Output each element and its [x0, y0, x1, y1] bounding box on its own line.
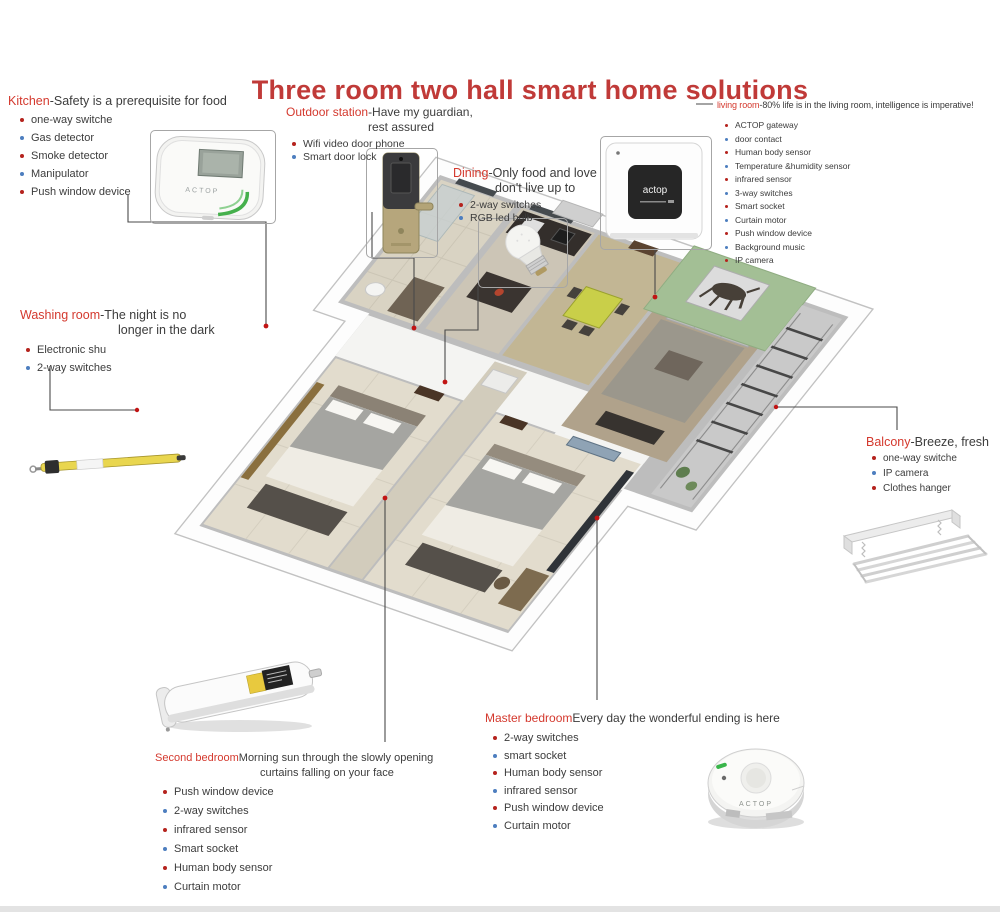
bullet-dot [725, 259, 728, 262]
washing-feature-list: Electronic shu 2-way switches [20, 344, 195, 375]
bullet-dot [493, 754, 497, 758]
balcony-desc: -Breeze, fresh [910, 435, 989, 449]
section-balcony: Balcony-Breeze, fresh one-way switche IP… [866, 435, 989, 498]
second-bedroom-feature-list: Push window device 2-way switches infrar… [155, 786, 433, 894]
feature-item: Temperature &humidity sensor [725, 161, 997, 171]
section-second-bedroom: Second bedroomMorning sun through the sl… [155, 751, 433, 900]
kitchen-name: Kitchen [8, 94, 50, 108]
bullet-dot [292, 142, 296, 146]
living-desc: -80% life is in the living room, intelli… [759, 100, 973, 110]
feature-item: Curtain motor [493, 820, 780, 833]
bullet-dot [20, 118, 24, 122]
bullet-dot [493, 789, 497, 793]
dining-desc: -Only food and love [488, 166, 596, 180]
bottom-edge-strip [0, 906, 1000, 912]
feature-item: Gas detector [20, 132, 227, 145]
second-bedroom-name: Second bedroom [155, 752, 239, 764]
feature-item: ACTOP gateway [725, 120, 997, 130]
washing-desc-line2: longer in the dark [118, 323, 195, 338]
outdoor-feature-list: Wifi video door phone Smart door lock [286, 138, 486, 163]
feature-item: Smart socket [163, 843, 433, 856]
master-bedroom-name: Master bedroom [485, 711, 572, 725]
balcony-feature-list: one-way switche IP camera Clothes hanger [866, 453, 989, 495]
washing-name: Washing room [20, 308, 100, 322]
wall-switch-brand-label: actop [643, 185, 668, 196]
bullet-dot [292, 155, 296, 159]
bullet-dot [493, 736, 497, 740]
balcony-name: Balcony [866, 435, 910, 449]
feature-item: Electronic shu [26, 344, 195, 357]
feature-item: Wifi video door phone [292, 138, 486, 150]
feature-item: Background music [725, 242, 997, 252]
bullet-dot [26, 348, 30, 352]
tubular-motor-image [25, 448, 193, 482]
feature-item: Manipulator [20, 168, 227, 181]
outdoor-name: Outdoor station [286, 105, 368, 119]
feature-item: infrared sensor [725, 174, 997, 184]
poster: ACTOP [0, 0, 1000, 912]
bullet-dot [725, 232, 728, 235]
bullet-dot [725, 246, 728, 249]
washing-desc: -The night is no [100, 308, 186, 322]
feature-item: IP camera [872, 468, 989, 480]
bullet-dot [163, 790, 167, 794]
feature-item: Push window device [20, 186, 227, 199]
bullet-dot [725, 124, 728, 127]
bullet-dot [163, 809, 167, 813]
section-kitchen: Kitchen-Safety is a prerequisite for foo… [8, 94, 227, 204]
door-lock-image [369, 151, 435, 255]
bullet-dot [163, 885, 167, 889]
bullet-dot [20, 190, 24, 194]
bullet-dot [872, 456, 876, 460]
feature-item: Smart socket [725, 201, 997, 211]
feature-item: Smart door lock [292, 151, 486, 163]
feature-item: 2-way switches [459, 199, 623, 211]
feature-item: 2-way switches [493, 732, 780, 745]
washing-heading: Washing room-The night is no [20, 308, 195, 323]
bullet-dot [163, 847, 167, 851]
dining-heading: Dining-Only food and love [453, 166, 623, 181]
feature-item: Push window device [163, 786, 433, 799]
bullet-dot [872, 486, 876, 490]
second-bedroom-desc: Morning sun through the slowly opening [239, 752, 433, 764]
dining-desc-line2: don't live up to [495, 181, 623, 196]
section-outdoor-station: Outdoor station-Have my guardian, rest a… [286, 105, 486, 164]
feature-item: Smoke detector [20, 150, 227, 163]
feature-item: Human body sensor [163, 862, 433, 875]
balcony-connector [778, 407, 897, 430]
bullet-dot [725, 178, 728, 181]
master-bedroom-feature-list: 2-way switches smart socket Human body s… [485, 732, 780, 833]
bullet-dot [872, 471, 876, 475]
living-name: living room [717, 100, 759, 110]
bullet-dot [20, 172, 24, 176]
section-master-bedroom: Master bedroomEvery day the wonderful en… [485, 711, 780, 837]
feature-item: 3-way switches [725, 188, 997, 198]
feature-item: infrared sensor [163, 824, 433, 837]
bullet-dot [725, 192, 728, 195]
dining-feature-list: 2-way switches RGB led bulb [453, 199, 623, 224]
feature-item: RGB led bulb [459, 212, 623, 224]
rgb-bulb-image [482, 222, 562, 284]
feature-item: one-way switche [872, 453, 989, 465]
bullet-dot [459, 203, 463, 207]
outdoor-heading: Outdoor station-Have my guardian, [286, 105, 486, 120]
living-heading: living room-80% life is in the living ro… [717, 98, 997, 113]
feature-item: Curtain motor [725, 215, 997, 225]
bullet-dot [26, 366, 30, 370]
feature-item: IP camera [725, 255, 997, 265]
feature-item: Human body sensor [725, 147, 997, 157]
bullet-dot [493, 806, 497, 810]
bullet-dot [493, 824, 497, 828]
feature-item: Curtain motor [163, 881, 433, 894]
bullet-dot [493, 771, 497, 775]
feature-item: Push window device [493, 802, 780, 815]
dining-name: Dining [453, 166, 488, 180]
feature-item: Clothes hanger [872, 483, 989, 495]
curtain-motor-image [152, 652, 330, 737]
feature-item: smart socket [493, 750, 780, 763]
bullet-dot [725, 219, 728, 222]
bullet-dot [459, 216, 463, 220]
bullet-dot [163, 828, 167, 832]
feature-item: 2-way switches [26, 362, 195, 375]
bullet-dot [725, 138, 728, 141]
section-dining: Dining-Only food and love don't live up … [453, 166, 623, 225]
bullet-dot [725, 165, 728, 168]
kitchen-desc: -Safety is a prerequisite for food [50, 94, 227, 108]
master-bedroom-desc: Every day the wonderful ending is here [572, 711, 779, 725]
second-bedroom-heading: Second bedroomMorning sun through the sl… [155, 751, 433, 766]
bullet-dot [20, 136, 24, 140]
second-bedroom-desc-line2: curtains falling on your face [260, 766, 433, 781]
bullet-dot [163, 866, 167, 870]
outdoor-desc: -Have my guardian, [368, 105, 473, 119]
bullet-dot [20, 154, 24, 158]
section-living-room: living room-80% life is in the living ro… [717, 98, 997, 269]
feature-item: Human body sensor [493, 767, 780, 780]
bullet-dot [725, 205, 728, 208]
feature-item: door contact [725, 134, 997, 144]
master-bedroom-heading: Master bedroomEvery day the wonderful en… [485, 711, 780, 726]
outdoor-desc-line2: rest assured [368, 120, 486, 135]
living-feature-list: ACTOP gateway door contact Human body se… [717, 120, 997, 265]
section-washing-room: Washing room-The night is no longer in t… [20, 308, 195, 380]
bullet-dot [725, 151, 728, 154]
kitchen-heading: Kitchen-Safety is a prerequisite for foo… [8, 94, 227, 109]
feature-item: 2-way switches [163, 805, 433, 818]
kitchen-feature-list: one-way switche Gas detector Smoke detec… [8, 114, 227, 199]
clothes-hanger-image [840, 502, 995, 592]
feature-item: Push window device [725, 228, 997, 238]
balcony-heading: Balcony-Breeze, fresh [866, 435, 989, 450]
feature-item: one-way switche [20, 114, 227, 127]
feature-item: infrared sensor [493, 785, 780, 798]
